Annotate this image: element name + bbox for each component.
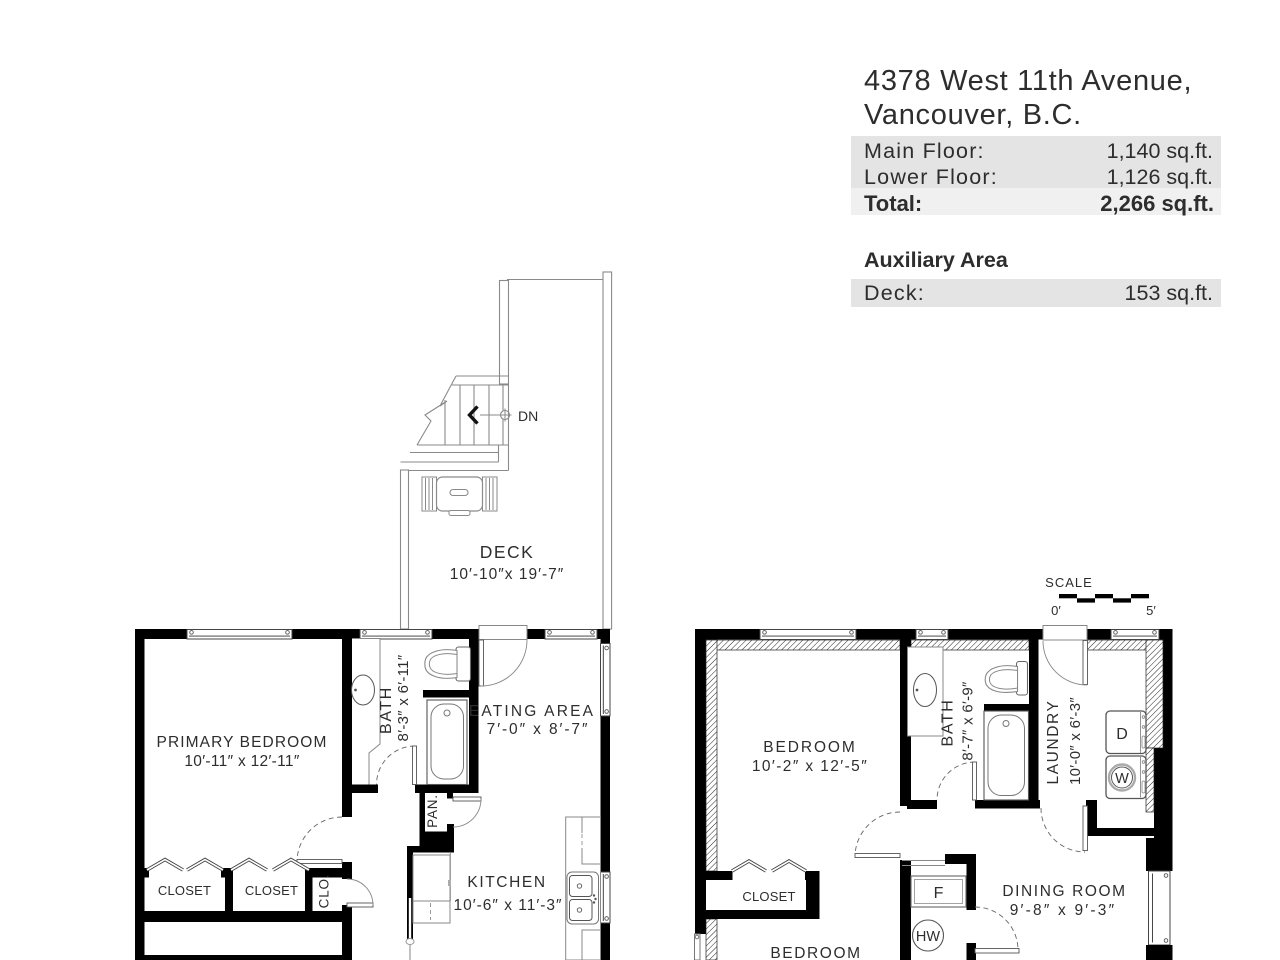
svg-text:PRIMARY BEDROOM: PRIMARY BEDROOM xyxy=(157,734,328,751)
svg-text:BEDROOM: BEDROOM xyxy=(770,945,861,960)
svg-text:10′-10″x 19′-7″: 10′-10″x 19′-7″ xyxy=(450,566,565,583)
svg-text:PAN.: PAN. xyxy=(425,794,440,828)
svg-text:1,126 sq.ft.: 1,126 sq.ft. xyxy=(1107,165,1213,189)
svg-text:4378 West 11th Avenue,: 4378 West 11th Avenue, xyxy=(864,65,1192,97)
svg-text:Main Floor:: Main Floor: xyxy=(864,139,985,163)
svg-text:153 sq.ft.: 153 sq.ft. xyxy=(1125,281,1213,305)
svg-text:EATING AREA: EATING AREA xyxy=(469,703,595,720)
svg-text:F: F xyxy=(934,885,944,902)
svg-text:BATH: BATH xyxy=(940,699,957,747)
svg-text:2,266 sq.ft.: 2,266 sq.ft. xyxy=(1100,191,1214,216)
svg-text:Auxiliary Area: Auxiliary Area xyxy=(864,248,1009,272)
svg-text:DINING ROOM: DINING ROOM xyxy=(1002,883,1126,900)
svg-text:HW: HW xyxy=(916,929,940,945)
svg-text:Total:: Total: xyxy=(864,191,922,216)
svg-text:0′: 0′ xyxy=(1051,603,1061,618)
svg-text:CLOSET: CLOSET xyxy=(742,889,795,904)
svg-text:KITCHEN: KITCHEN xyxy=(467,874,546,891)
svg-text:Vancouver, B.C.: Vancouver, B.C. xyxy=(864,99,1082,131)
svg-text:D: D xyxy=(1116,726,1128,743)
svg-text:10′-0″ x 6′-3″: 10′-0″ x 6′-3″ xyxy=(1067,697,1084,785)
svg-text:CLOSET: CLOSET xyxy=(245,883,298,898)
svg-text:Lower Floor:: Lower Floor: xyxy=(864,165,998,189)
svg-text:BATH: BATH xyxy=(378,686,395,734)
svg-text:CLOSET: CLOSET xyxy=(158,883,211,898)
svg-text:DN: DN xyxy=(518,408,538,424)
svg-text:8′-3″ x 6′-11″: 8′-3″ x 6′-11″ xyxy=(395,654,412,741)
svg-text:SCALE: SCALE xyxy=(1045,575,1093,590)
svg-text:LAUNDRY: LAUNDRY xyxy=(1045,700,1062,785)
svg-text:W: W xyxy=(1115,771,1129,787)
svg-text:DECK: DECK xyxy=(480,542,535,562)
svg-text:5′: 5′ xyxy=(1146,603,1156,618)
svg-text:10′-6″ x 11′-3″: 10′-6″ x 11′-3″ xyxy=(453,897,562,914)
svg-text:7′-0″ x 8′-7″: 7′-0″ x 8′-7″ xyxy=(487,721,590,738)
svg-text:8′-7″ x 6′-9″: 8′-7″ x 6′-9″ xyxy=(960,681,977,761)
svg-text:10′-2″ x 12′-5″: 10′-2″ x 12′-5″ xyxy=(752,758,868,775)
svg-text:BEDROOM: BEDROOM xyxy=(763,739,856,756)
svg-text:CLO.: CLO. xyxy=(317,874,332,909)
svg-text:1,140 sq.ft.: 1,140 sq.ft. xyxy=(1107,139,1213,163)
svg-text:9′-8″ x 9′-3″: 9′-8″ x 9′-3″ xyxy=(1010,902,1117,919)
svg-text:10′-11″ x 12′-11″: 10′-11″ x 12′-11″ xyxy=(184,753,299,770)
svg-text:Deck:: Deck: xyxy=(864,281,925,305)
